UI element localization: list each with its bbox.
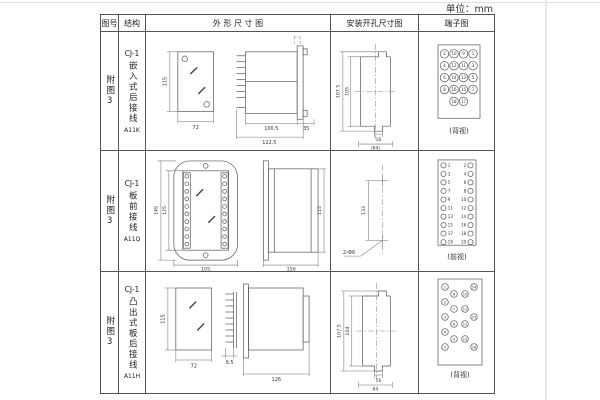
- structure-a11k: CJ-1 嵌入式后接线 A11K: [119, 32, 146, 151]
- header-terminal: 端子图: [419, 15, 494, 32]
- dim-side-height: 115: [317, 206, 323, 215]
- terminal-svg-a11h: 12345678910111213141516 (背视): [419, 272, 494, 393]
- svg-text:3: 3: [444, 315, 446, 319]
- svg-text:12: 12: [463, 322, 468, 326]
- svg-text:16: 16: [461, 223, 467, 228]
- dim-mount-inner: 104: [345, 326, 351, 335]
- svg-text:12: 12: [461, 206, 467, 211]
- svg-text:20: 20: [461, 240, 467, 245]
- side-view-drawing: 100.5 35 122.5: [237, 37, 315, 146]
- outline-svg-a11q: 149 125 105 156: [146, 151, 330, 271]
- dim-front-height: 115: [160, 314, 166, 324]
- structure-code-label: A11H: [124, 373, 140, 380]
- svg-text:4: 4: [464, 171, 467, 176]
- dim-side-width: 156: [287, 267, 296, 271]
- outline-svg-a11h: 115 72 9.5: [146, 272, 330, 393]
- dim-hole-span: 133: [361, 206, 367, 215]
- structure-a11h: CJ-1 凸出式板后接线 A11H: [119, 272, 146, 393]
- svg-text:16: 16: [472, 345, 477, 349]
- svg-text:7: 7: [448, 188, 451, 193]
- page-right-edge: [545, 0, 547, 400]
- svg-text:3: 3: [472, 63, 475, 68]
- svg-text:13: 13: [448, 214, 454, 219]
- side-view-drawing: 126: [243, 284, 309, 383]
- header-fig-no: 图号: [101, 15, 119, 32]
- svg-text:10: 10: [451, 51, 457, 56]
- svg-text:15: 15: [461, 87, 467, 92]
- model-label: CJ-1: [125, 285, 140, 294]
- terminal-comb: [237, 56, 246, 108]
- catalog-page: 单位：mm 图号 结构 外 形 尺 寸 图 安装开孔尺寸图 端子图 附图3 CJ…: [0, 0, 600, 400]
- mounting-drawing-a11h: 107.5 104 16 64: [331, 272, 419, 393]
- svg-text:5: 5: [444, 345, 446, 349]
- svg-text:5: 5: [448, 180, 451, 185]
- header-mounting: 安装开孔尺寸图: [331, 15, 419, 32]
- svg-text:10: 10: [463, 292, 468, 296]
- dim-hole-label: 2-Φ6: [343, 250, 355, 256]
- a11q-front-terminals: [185, 174, 227, 246]
- svg-text:11: 11: [461, 63, 467, 68]
- front-view-drawing: 115 72: [162, 52, 213, 131]
- dim-mount-slot: 16: [376, 137, 382, 143]
- terminal-svg-a11q: 1357911131517192468101214161820 (前视): [419, 151, 494, 271]
- dim-front-width: 105: [201, 267, 210, 271]
- svg-text:9: 9: [448, 197, 451, 202]
- svg-text:6: 6: [464, 180, 467, 185]
- svg-text:14: 14: [472, 285, 477, 289]
- dim-side-total: 122.5: [262, 140, 276, 146]
- dim-mount-outer: 107.5: [335, 85, 341, 99]
- mounting-svg-a11h: 107.5 104 16 64: [331, 272, 418, 393]
- fig-no-text: 附图3: [105, 316, 114, 349]
- dim-mount-inner: 105: [344, 87, 350, 96]
- structure-code-label: A11Q: [124, 236, 140, 243]
- dim-side-width: 126: [272, 377, 281, 383]
- spec-table: 图号 结构 外 形 尺 寸 图 安装开孔尺寸图 端子图 附图3 CJ-1 嵌入式…: [100, 14, 495, 394]
- dim-front-outer: 149: [153, 206, 159, 215]
- front-view-drawing: 115 72: [160, 288, 211, 370]
- dim-front-height: 115: [162, 77, 168, 86]
- model-label: CJ-1: [125, 49, 140, 58]
- svg-text:5: 5: [472, 75, 475, 80]
- svg-text:3: 3: [448, 171, 451, 176]
- svg-text:11: 11: [463, 307, 468, 311]
- terminal-diagram-a11q: 1357911131517192468101214161820 (前视): [419, 151, 494, 272]
- svg-text:18: 18: [461, 231, 467, 236]
- structure-type-label: 板前接线: [128, 191, 137, 233]
- terminal-diagram-a11h: 12345678910111213141516 (背视): [419, 272, 494, 393]
- dim-front-width: 72: [193, 125, 199, 131]
- fig-no-a11h: 附图3: [101, 272, 119, 393]
- svg-text:14: 14: [461, 214, 467, 219]
- svg-text:1: 1: [444, 285, 446, 289]
- svg-text:13: 13: [463, 337, 468, 341]
- svg-text:2: 2: [443, 51, 446, 56]
- outline-drawing-a11q: 149 125 105 156: [146, 151, 331, 272]
- svg-text:8: 8: [453, 322, 456, 326]
- side-view-drawing: 156 115: [263, 161, 326, 271]
- svg-text:13: 13: [461, 75, 467, 80]
- svg-text:17: 17: [461, 99, 467, 104]
- svg-text:15: 15: [472, 315, 477, 319]
- mounting-drawing-a11k: 107.5 105 16 (64): [331, 32, 419, 151]
- svg-text:4: 4: [444, 330, 447, 334]
- terminal-view-label: (前视): [447, 252, 467, 261]
- outline-drawing-a11h: 115 72 9.5: [146, 272, 331, 393]
- structure-type-label: 凸出式板后接线: [128, 297, 137, 371]
- dim-mount-slot: 16: [376, 378, 382, 384]
- svg-text:14: 14: [451, 75, 457, 80]
- front-view-drawing: 149 125 105: [153, 161, 237, 271]
- header-structure: 结构: [119, 15, 146, 32]
- svg-text:6: 6: [453, 292, 456, 296]
- structure-a11q: CJ-1 板前接线 A11Q: [119, 151, 146, 272]
- svg-text:7: 7: [472, 87, 475, 92]
- terminal-svg-a11k: 210914121136141358161571817 (背视): [419, 32, 494, 150]
- svg-text:4: 4: [443, 63, 446, 68]
- a11k-terminal-grid: 210914121136141358161571817: [440, 50, 477, 106]
- dim-mount-span: (64): [371, 145, 380, 150]
- svg-text:2: 2: [464, 163, 467, 168]
- svg-text:18: 18: [451, 99, 457, 104]
- structure-code-label: A11K: [124, 127, 140, 134]
- svg-text:6: 6: [443, 75, 446, 80]
- fig-no-a11q: 附图3: [101, 151, 119, 272]
- svg-text:9: 9: [462, 51, 465, 56]
- svg-text:8: 8: [443, 87, 446, 92]
- svg-text:10: 10: [461, 197, 467, 202]
- header-outline: 外 形 尺 寸 图: [146, 15, 331, 32]
- terminal-diagram-a11k: 210914121136141358161571817 (背视): [419, 32, 494, 151]
- svg-text:19: 19: [448, 240, 454, 245]
- svg-text:16: 16: [451, 87, 457, 92]
- terminal-view-label: (背视): [450, 370, 470, 379]
- unit-label: 单位：mm: [420, 1, 493, 15]
- fig-no-text: 附图3: [105, 195, 114, 228]
- outline-drawing-a11k: 115 72 100.5: [146, 32, 331, 151]
- fig-no-text: 附图3: [105, 75, 114, 108]
- a11h-terminal-grid: 12345678910111213141516: [442, 284, 478, 351]
- mounting-drawing-a11q: 133 2-Φ6: [331, 151, 419, 272]
- svg-text:1: 1: [448, 163, 451, 168]
- structure-type-label: 嵌入式后接线: [128, 61, 137, 124]
- mounting-svg-a11k: 107.5 105 16 (64): [331, 32, 418, 150]
- pin-comb-drawing: 9.5: [222, 292, 238, 366]
- dim-front-inner: 125: [162, 206, 168, 215]
- svg-text:1: 1: [472, 51, 475, 56]
- a11q-terminal-strip: 1357911131517192468101214161820: [441, 163, 473, 245]
- svg-text:9: 9: [453, 337, 456, 341]
- model-label: CJ-1: [125, 179, 140, 188]
- svg-text:7: 7: [453, 307, 455, 311]
- dim-front-width: 72: [191, 363, 197, 369]
- mounting-svg-a11q: 133 2-Φ6: [331, 151, 418, 271]
- svg-text:15: 15: [448, 223, 454, 228]
- fig-no-a11k: 附图3: [101, 32, 119, 151]
- dim-side-width: 100.5: [264, 126, 278, 132]
- dim-mount-outer: 107.5: [336, 324, 342, 338]
- terminal-view-label: (背视): [449, 126, 469, 135]
- page-top-edge: [0, 2, 600, 3]
- svg-text:17: 17: [448, 231, 454, 236]
- terminal-comb: [226, 294, 234, 342]
- svg-text:11: 11: [448, 206, 454, 211]
- svg-text:8: 8: [464, 188, 467, 193]
- dim-pin-pitch: 9.5: [226, 360, 234, 366]
- dim-mount-span: 64: [373, 386, 379, 392]
- svg-text:2: 2: [444, 300, 446, 304]
- svg-text:12: 12: [451, 63, 457, 68]
- dim-panel-depth: 35: [303, 126, 309, 132]
- outline-svg-a11k: 115 72 100.5: [146, 32, 330, 150]
